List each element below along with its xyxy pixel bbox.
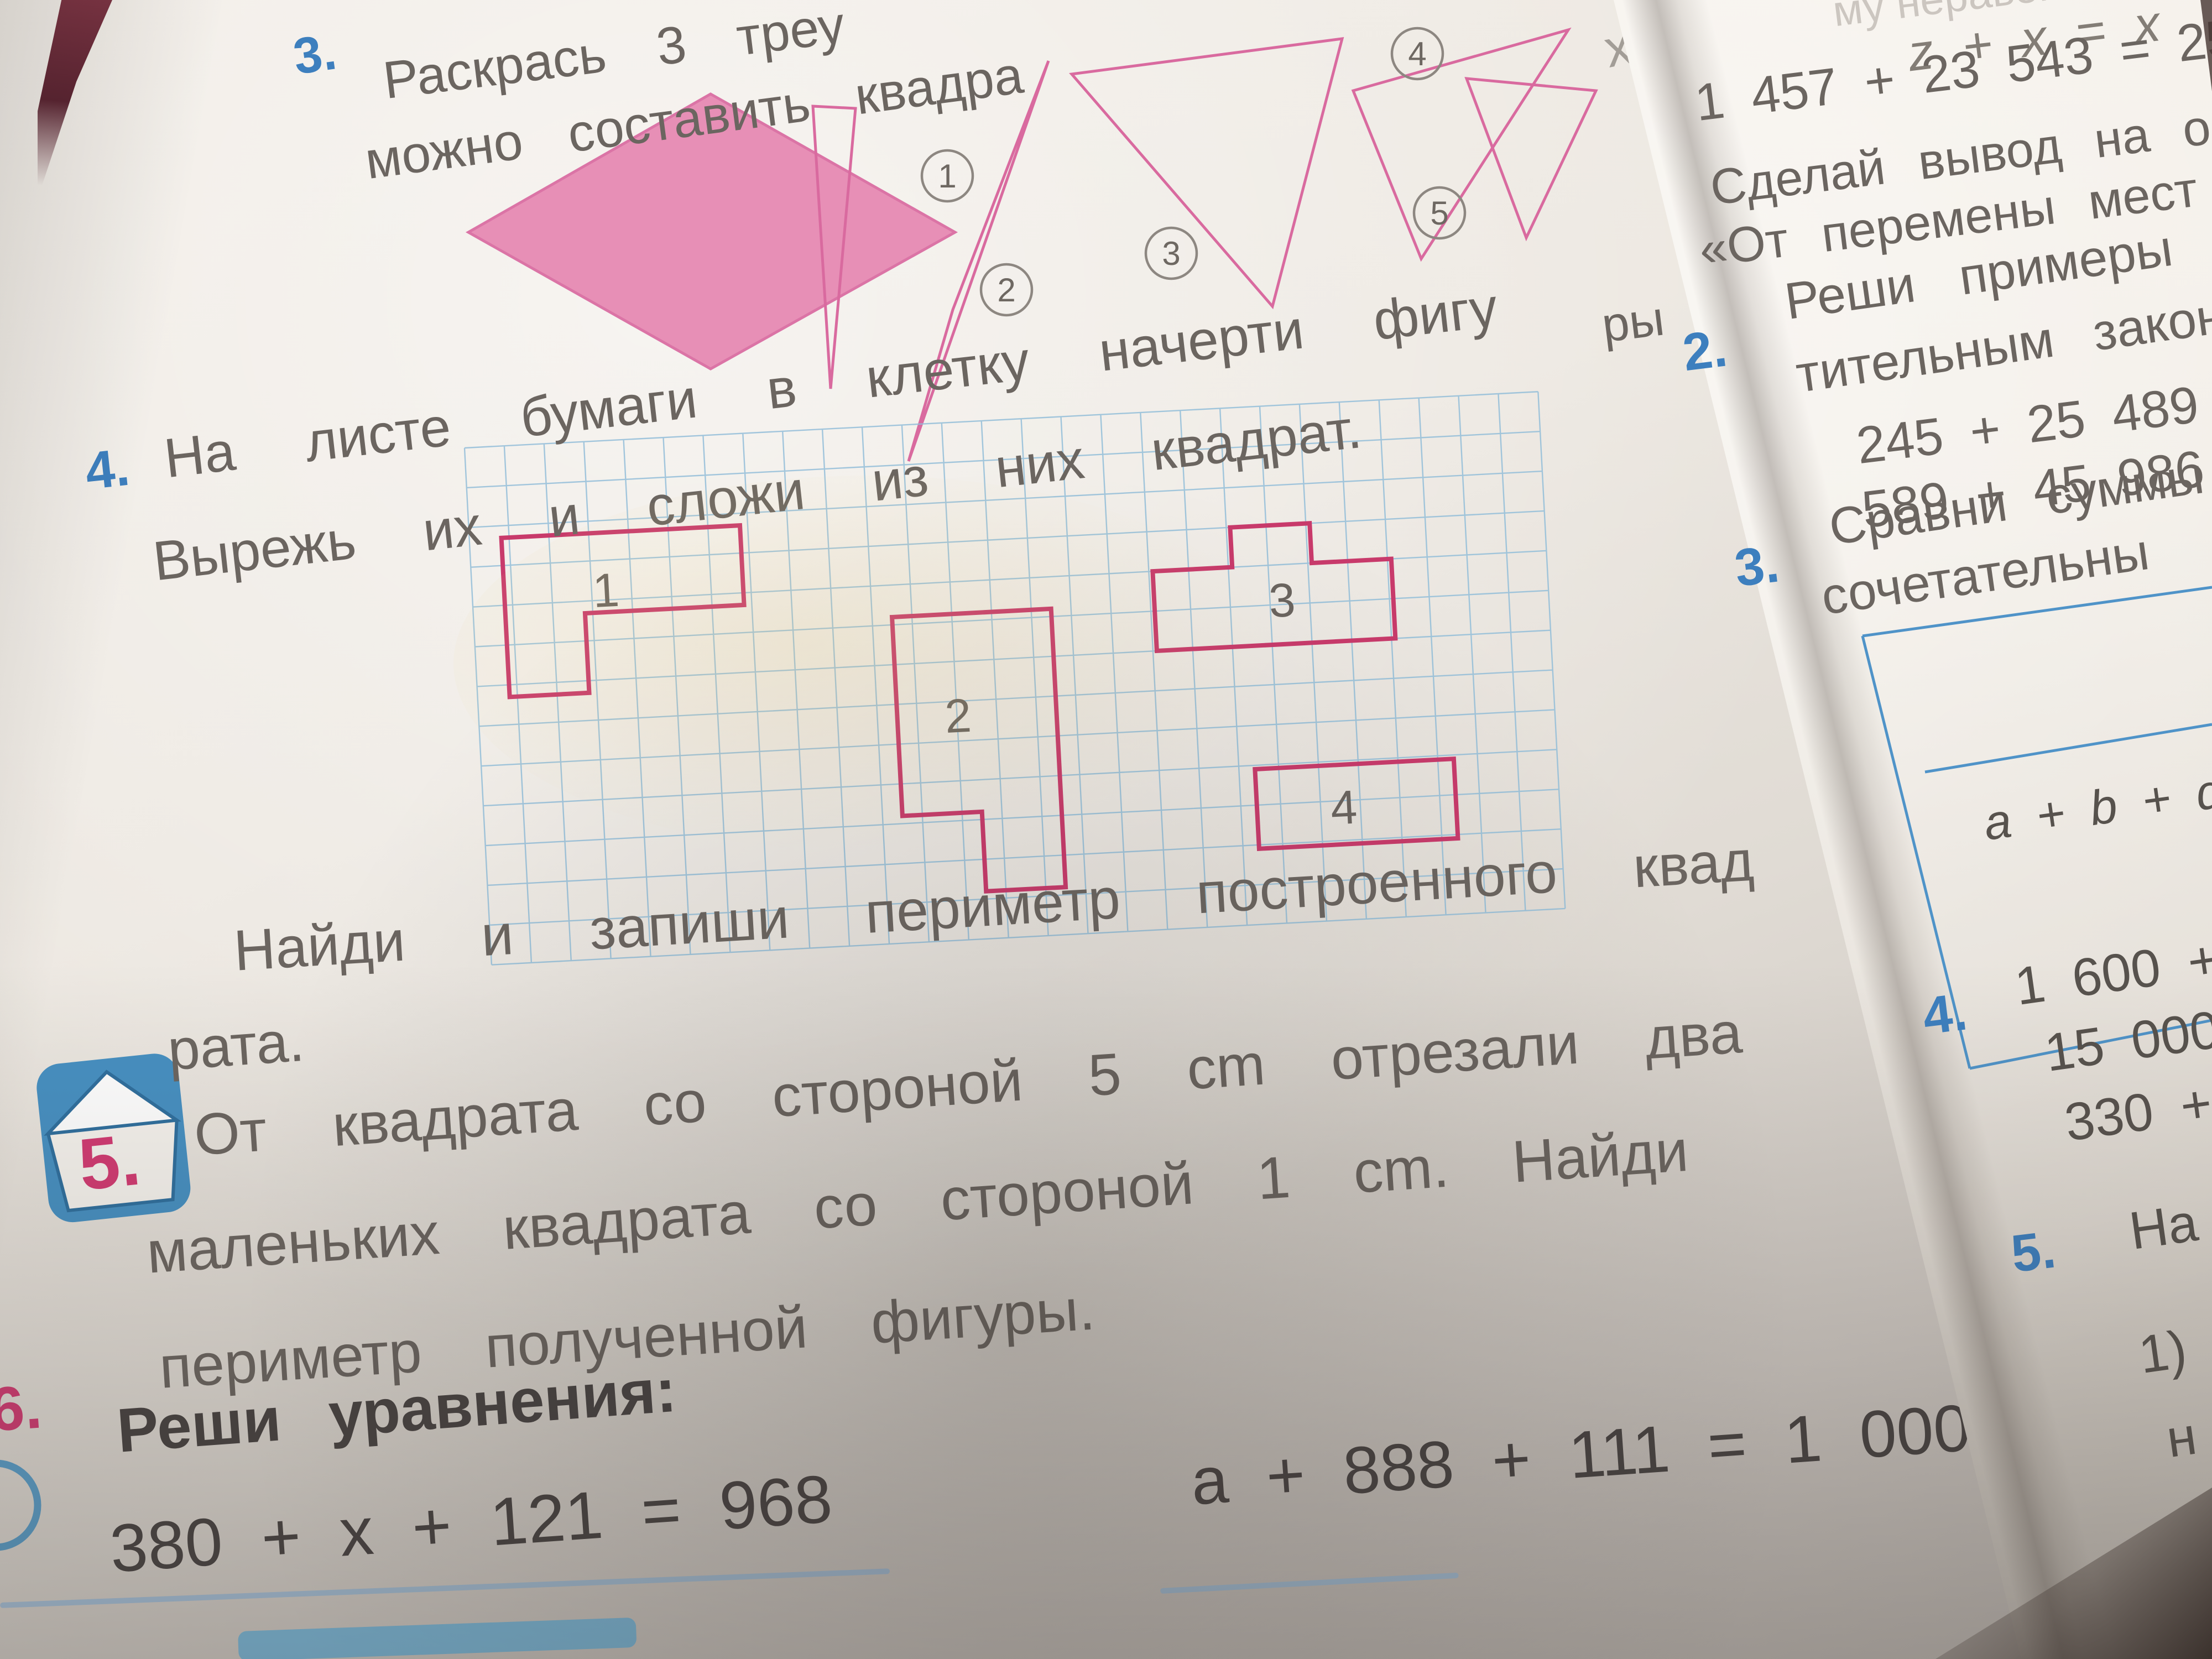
right-task5-line1: На — [2126, 1196, 2201, 1258]
photo-of-math-workbook-page: 1 2 3 4 5 1 2 3 4 — [0, 0, 2212, 1659]
right-task3-number: 3. — [1732, 538, 1782, 595]
right-task5-number: 5. — [2008, 1223, 2058, 1281]
right-task2-number: 2. — [1680, 322, 1730, 379]
right-task4-number: 4. — [1920, 985, 1970, 1043]
right-task5-item1: 1) — [2136, 1323, 2190, 1382]
